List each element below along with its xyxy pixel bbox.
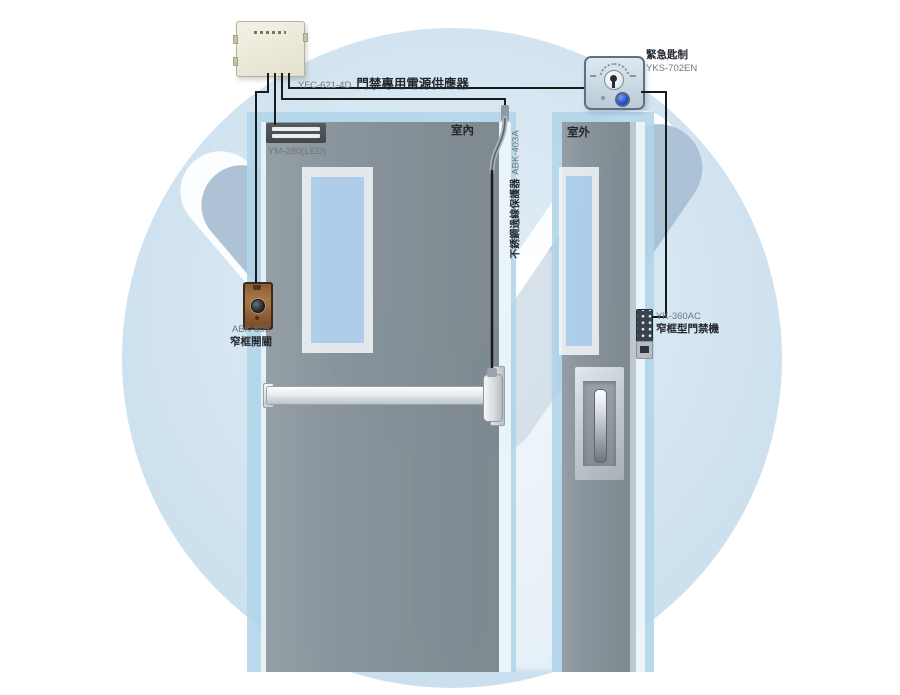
power-supply-model: YFC-621-4D [298, 80, 351, 91]
power-supply-mount-tab [233, 57, 238, 66]
right-door-window-glass [566, 176, 592, 346]
key-switch-tick [590, 75, 596, 77]
exit-button-dot [255, 316, 259, 320]
exit-button-notch [253, 285, 261, 290]
maglock-stripe [272, 134, 320, 138]
panic-bar-latch-housing [483, 374, 503, 422]
power-supply-label: YFC-621-4D門禁專用電源供應器 [298, 73, 469, 93]
room-outside-label: 室外 [567, 124, 590, 140]
power-supply-name: 門禁專用電源供應器 [356, 77, 469, 91]
indicator-dot [601, 96, 605, 100]
key-switch-tick [630, 75, 636, 77]
electromagnetic-lock [266, 123, 326, 143]
emergency-switch-label: 緊急匙制 YKS-702EN [646, 50, 697, 74]
emergency-key-switch [584, 56, 645, 110]
door-gap-highlight [512, 250, 554, 670]
keypad-display-slot [640, 346, 649, 353]
conduit-name: 不銹鋼過線保護器 [511, 179, 522, 259]
recessed-handle-grip [594, 389, 607, 463]
keypad-reader [636, 309, 653, 342]
exit-button-label: ABK-805 窄框開關 [221, 324, 281, 349]
power-supply-mount-tab [303, 33, 308, 42]
room-inside-label: 室內 [451, 122, 474, 138]
exit-button-key [251, 299, 265, 313]
exit-button-name: 窄框開關 [221, 336, 281, 349]
keyhole-slot [612, 80, 615, 88]
conduit-label: 不銹鋼過線保護器ABK-403A [506, 130, 519, 260]
diagram-canvas: YFC-621-4D門禁專用電源供應器 YM-280(LED) 室內 室外 不銹… [0, 0, 900, 695]
keypad-model: YK-360AC [656, 311, 719, 323]
exit-push-button [243, 282, 273, 330]
right-door-frame-edge [636, 122, 645, 672]
emergency-switch-name: 緊急匙制 [646, 50, 697, 63]
power-supply-mount-tab [233, 35, 238, 44]
left-door-window-glass [311, 177, 364, 343]
blue-reset-button [615, 92, 630, 107]
exit-button-model: ABK-805 [221, 324, 281, 336]
keypad-name: 窄框型門禁機 [656, 323, 719, 337]
keypad-label: YK-360AC 窄框型門禁機 [656, 311, 719, 337]
emergency-switch-model: YKS-702EN [646, 63, 697, 74]
conduit-model: ABK-403A [511, 130, 522, 174]
power-supply-vents [254, 31, 286, 34]
maglock-label: YM-280(LED) [268, 146, 326, 157]
panic-bar [266, 386, 492, 405]
maglock-stripe [272, 127, 320, 131]
power-supply-box [236, 21, 305, 77]
keypad-lower-panel [636, 341, 653, 359]
